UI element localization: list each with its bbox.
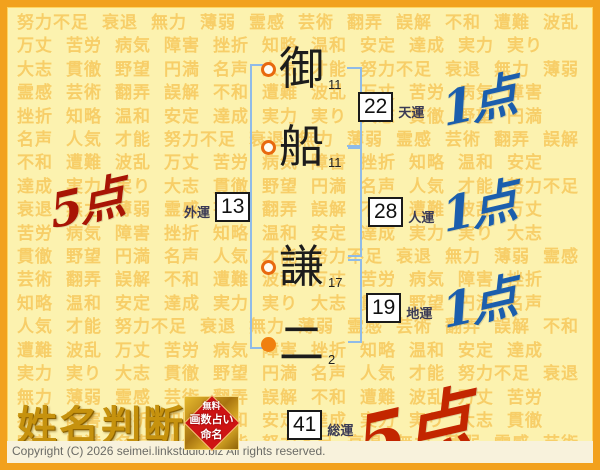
watermark-word: 挫折 [360,151,396,174]
watermark-word: 波乱 [66,339,102,362]
watermark-word: 苦労 [164,339,200,362]
watermark-word: 大志 [311,292,347,315]
watermark-word: 苦労 [17,222,53,245]
watermark-word: 安定 [458,339,494,362]
badge-line: 画数占い [184,412,239,428]
jinun-box: 28 人運 [368,197,434,227]
watermark-word: 波乱 [115,151,151,174]
watermark-word: 大志 [17,58,53,81]
souun-value: 41 [287,410,322,440]
watermark-word: 誤解 [311,198,347,221]
watermark-word: 不和 [213,81,249,104]
watermark-word: 努力不足 [360,58,432,81]
watermark-word: 波乱 [543,11,579,34]
watermark-word: 達成 [507,339,543,362]
watermark-word: 薄弱 [200,11,236,34]
watermark-word: 不和 [17,151,53,174]
copyright-text: Copyright (C) 2026 seimei.linkstudio.biz… [7,441,593,463]
tenun-box: 22 天運 [358,92,424,122]
watermark-word: 名声 [360,175,396,198]
watermark-word: 誤解 [396,11,432,34]
watermark-word: 衰退 [17,198,53,221]
bracket-chiun [348,259,362,343]
ring-marker-icon [261,260,276,275]
bracket-jinun [348,147,362,257]
watermark-word: 円満 [115,245,151,268]
watermark-word: 達成 [409,34,445,57]
watermark-word: 霊感 [396,128,432,151]
chiun-value: 19 [366,293,401,323]
watermark-word: 才能 [66,315,102,338]
watermark-word: 努力不足 [115,315,187,338]
watermark-word: 人気 [66,128,102,151]
watermark-word: 衰退 [543,362,579,385]
watermark-word: 安定 [164,105,200,128]
watermark-word: 苦労 [213,151,249,174]
watermark-word: 翻弄 [66,268,102,291]
name-character: 謙 [279,243,324,291]
name-char-row: 御 11 [261,45,342,93]
watermark-word: 貫徹 [66,58,102,81]
stroke-count: 11 [328,77,342,92]
dot-marker-icon [261,337,276,352]
watermark-word: 貫徹 [507,409,543,432]
watermark-word: 野望 [213,362,249,385]
watermark-word: 名声 [213,58,249,81]
watermark-word: 実り [262,292,298,315]
badge-line: 命名 [184,428,239,443]
watermark-word: 努力不足 [458,362,530,385]
watermark-word: 実り [507,34,543,57]
watermark-word: 遭難 [213,268,249,291]
watermark-word: 芸術 [17,268,53,291]
watermark-word: 翻弄 [262,198,298,221]
watermark-word: 不和 [543,315,579,338]
badge-line: 無料 [184,400,239,412]
watermark-word: 貫徹 [164,362,200,385]
souun-label: 総運 [327,420,353,439]
watermark-word: 誤解 [262,386,298,409]
bracket-gaiun [250,64,264,349]
watermark-word: 誤解 [164,81,200,104]
watermark-word: 翻弄 [115,81,151,104]
watermark-word: 不和 [164,268,200,291]
watermark-word: 野望 [262,175,298,198]
name-char-row: 船 11 [261,123,342,171]
watermark-word: 名声 [17,128,53,151]
watermark-word: 万丈 [115,339,151,362]
watermark-word: 大志 [115,362,151,385]
watermark-word: 努力不足 [507,175,579,198]
watermark-word: 達成 [164,292,200,315]
watermark-word: 努力不足 [164,128,236,151]
watermark-word: 実力 [17,362,53,385]
stroke-count: 11 [328,155,342,170]
watermark-word: 実り [66,362,102,385]
watermark-word: 挫折 [164,222,200,245]
watermark-word: 翻弄 [347,11,383,34]
watermark-word: 知略 [17,292,53,315]
watermark-word: 衰退 [200,315,236,338]
name-char-row: 謙 17 [261,243,342,291]
stroke-count: 17 [328,275,342,290]
watermark-word: 遭難 [494,11,530,34]
watermark-word: 貫徹 [17,245,53,268]
name-char-row: 二 2 [261,320,335,368]
seimei-result-page: 努力不足衰退無力薄弱霊感芸術翻弄誤解不和遭難波乱万丈苦労病気障害挫折知略温和安定… [0,0,600,470]
watermark-word: 万丈 [164,151,200,174]
watermark-word: 知略 [66,105,102,128]
chiun-label: 地運 [406,303,432,322]
watermark-word: 人気 [213,245,249,268]
watermark-word: 挫折 [17,105,53,128]
watermark-word: 知略 [409,151,445,174]
watermark-word: 衰退 [396,245,432,268]
watermark-word: 円満 [164,58,200,81]
watermark-word: 温和 [409,339,445,362]
watermark-word: 遭難 [17,339,53,362]
gaiun-label: 外運 [184,202,210,221]
watermark-word: 不和 [311,386,347,409]
watermark-word: 翻弄 [494,128,530,151]
free-naming-badge[interactable]: 無料 画数占い 命名 [184,396,239,450]
watermark-word: 野望 [66,245,102,268]
badge-text: 無料 画数占い 命名 [184,400,239,443]
name-character: 二 [279,320,324,368]
tenun-value: 22 [358,92,393,122]
watermark-word: 実力 [213,292,249,315]
stroke-count: 2 [328,352,335,367]
name-character: 御 [279,45,324,93]
watermark-word: 努力不足 [17,11,89,34]
watermark-word: 苦労 [507,386,543,409]
tenun-label: 天運 [398,102,424,121]
jinun-label: 人運 [408,207,434,226]
watermark-word: 不和 [445,11,481,34]
watermark-word: 実力 [458,34,494,57]
watermark-word: 温和 [66,292,102,315]
watermark-word: 野望 [115,58,151,81]
watermark-word: 人気 [17,315,53,338]
watermark-word: 万丈 [17,34,53,57]
watermark-word: 霊感 [249,11,285,34]
souun-box: 41 総運 [287,410,353,440]
watermark-word: 苦労 [360,268,396,291]
watermark-word: 温和 [115,105,151,128]
watermark-word: 苦労 [66,34,102,57]
watermark-word: 霊感 [17,81,53,104]
watermark-word: 病気 [115,34,151,57]
watermark-word: 霊感 [543,245,579,268]
watermark-word: 芸術 [66,81,102,104]
watermark-word: 円満 [311,175,347,198]
ring-marker-icon [261,62,276,77]
gaiun-value: 13 [215,192,250,222]
ring-marker-icon [261,140,276,155]
jinun-value: 28 [368,197,403,227]
watermark-word: 障害 [164,34,200,57]
watermark-word: 誤解 [115,268,151,291]
watermark-word: 誤解 [543,128,579,151]
watermark-word: 挫折 [213,34,249,57]
watermark-word: 知略 [213,222,249,245]
watermark-word: 安定 [360,34,396,57]
watermark-word: 安定 [507,151,543,174]
gaiun-box: 外運 13 [184,192,250,222]
watermark-word: 芸術 [298,11,334,34]
watermark-word: 病気 [213,339,249,362]
name-character: 船 [279,123,324,171]
watermark-word: 衰退 [102,11,138,34]
chiun-box: 19 地運 [366,293,432,323]
watermark-word: 達成 [213,105,249,128]
watermark-word: 才能 [115,128,151,151]
watermark-word: 知略 [360,339,396,362]
watermark-word: 名声 [164,245,200,268]
watermark-word: 薄弱 [543,58,579,81]
watermark-word: 安定 [115,292,151,315]
watermark-word: 無力 [151,11,187,34]
